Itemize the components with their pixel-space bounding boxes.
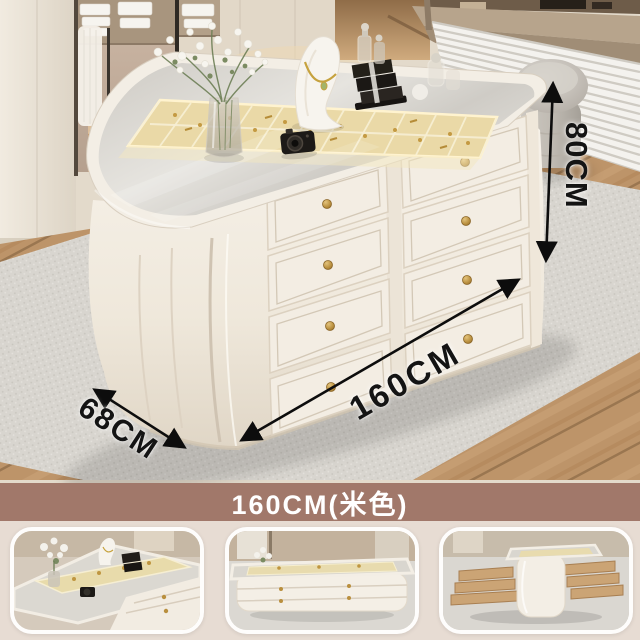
wardrobe: [0, 0, 76, 246]
knob: [462, 217, 471, 226]
knob: [324, 261, 333, 270]
thumbnail-1-scene: [14, 531, 200, 630]
variant-banner: 160CM(米色): [0, 483, 640, 521]
knob: [463, 276, 472, 285]
height-dimension-label: 80CM: [558, 122, 594, 226]
main-product-image[interactable]: 80CM 160CM 68CM: [0, 0, 640, 483]
thumbnail-side-view[interactable]: [225, 527, 419, 634]
thumbnail-3-scene: [443, 531, 629, 630]
desk-decor-items: [540, 0, 586, 9]
thumbnail-row: [0, 521, 640, 640]
thumbnail-open-drawers-view[interactable]: [439, 527, 633, 634]
variant-banner-label: 160CM(米色): [231, 483, 408, 522]
product-image-card: 80CM 160CM 68CM 160CM(米色): [0, 0, 640, 640]
white-fuzzy-ball: [412, 84, 428, 100]
thumbnail-2-scene: [229, 531, 415, 630]
thumbnail-glass-top-close-up[interactable]: [10, 527, 204, 634]
mirror-frame-left: [74, 0, 78, 176]
flower-vase: [206, 98, 242, 157]
knob: [323, 200, 332, 209]
knob: [326, 322, 335, 331]
